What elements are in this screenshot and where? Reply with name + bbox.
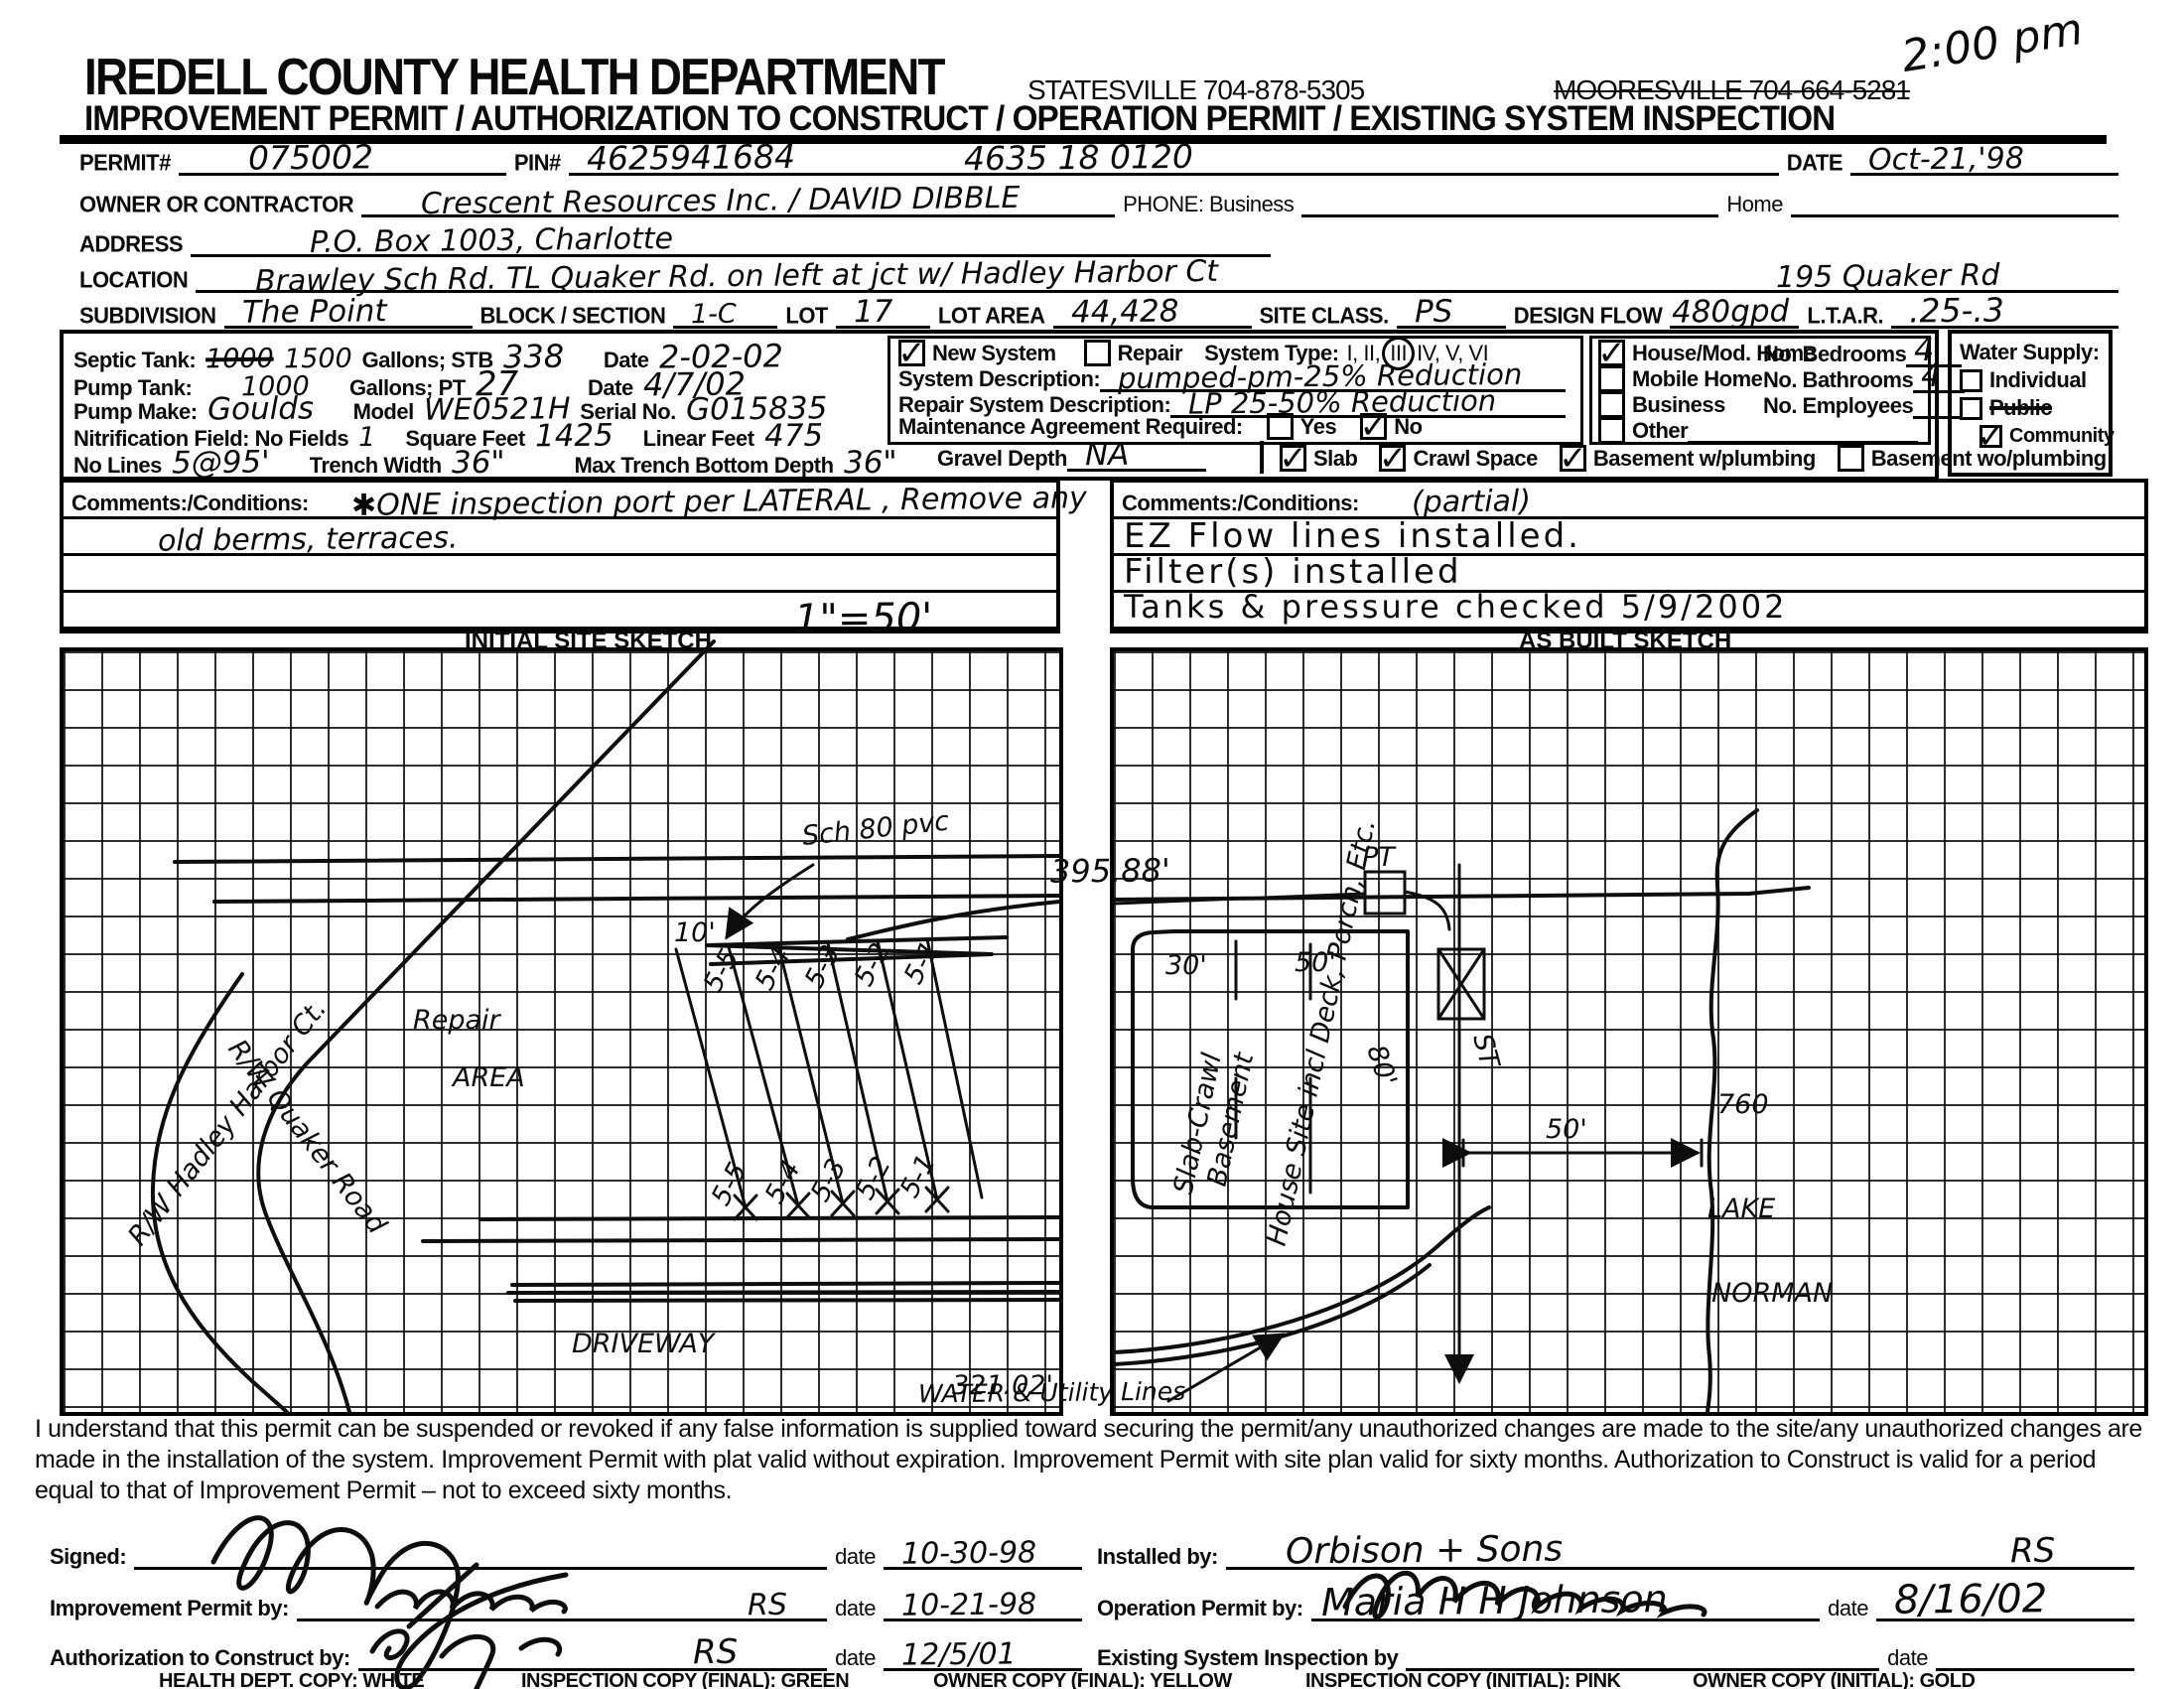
permit-field: 075002: [179, 143, 506, 176]
authorization-field: RS: [358, 1638, 827, 1671]
comments-left-label: Comments:/Conditions:: [71, 491, 309, 516]
community-label: Community: [2009, 425, 2115, 448]
house-checkbox: ✓: [1598, 340, 1625, 366]
copy-note-white: HEALTH DEPT. COPY: WHITE: [159, 1670, 424, 1689]
improvement-permit-label: Improvement Permit by:: [50, 1596, 289, 1621]
lateral-bottom-label: 5-4: [759, 1156, 807, 1209]
address-label: ADDRESS: [79, 230, 183, 257]
operation-date-value: 8/16/02: [1894, 1576, 2048, 1623]
legal-paragraph: I understand that this permit can be sus…: [35, 1414, 2159, 1506]
bathrooms-label: No. Bathrooms: [1763, 367, 1913, 393]
installed-by-label: Installed by:: [1097, 1544, 1218, 1570]
comments-right-line3: Tanks & pressure checked 5/9/2002: [1124, 588, 1787, 626]
signed-date-label: date: [835, 1544, 876, 1570]
site-class-label: SITE CLASS.: [1260, 302, 1389, 329]
water-supply-title: Water Supply:: [1960, 340, 2100, 365]
septic-tank-label: Septic Tank:: [73, 348, 196, 373]
system-type-box: ✓ New System Repair System Type: I, II, …: [887, 336, 1583, 445]
owner-label: OWNER OR CONTRACTOR: [79, 191, 353, 217]
copy-note-yellow: OWNER COPY (FINAL): YELLOW: [933, 1670, 1232, 1689]
pin-label: PIN#: [514, 149, 561, 176]
address-value: P.O. Box 1003, Charlotte: [310, 221, 673, 260]
installed-by-field: Orbison + Sons RS: [1226, 1537, 2134, 1570]
basement-wo-plumbing-checkbox: [1838, 445, 1864, 472]
no-lines-value: 5@95': [172, 444, 270, 481]
mobile-home-label: Mobile Home: [1632, 366, 1762, 392]
crawl-space-checkbox: ✓: [1379, 445, 1406, 472]
date-field: Oct-21,'98: [1850, 143, 2118, 176]
as-built-sketch-grid: PT ST 30' 50' 80' Slab-Crawl Basement Ho…: [1110, 647, 2148, 1416]
structure-type-box: ✓ House/Mod. Home Mobile Home Business O…: [1589, 336, 1931, 445]
permit-value: 075002: [248, 137, 373, 177]
authorization-suffix: RS: [693, 1632, 739, 1672]
new-system-checkbox: ✓: [898, 340, 925, 366]
improvement-date-label: date: [835, 1596, 876, 1621]
existing-date-label: date: [1887, 1645, 1928, 1671]
system-spec-box: Septic Tank: 1000 1500 Gallons; STB 338 …: [60, 330, 1939, 481]
location-row: LOCATION Brawley Sch Rd. TL Quaker Rd. o…: [79, 260, 2118, 293]
design-flow-label: DESIGN FLOW: [1514, 302, 1663, 329]
trench-width-label: Trench Width: [310, 453, 442, 479]
lake-label-1: LAKE: [1707, 1194, 1775, 1224]
new-system-label: New System: [932, 341, 1056, 366]
comments-right-note: (partial): [1412, 484, 1531, 519]
stb-date-label: Date: [604, 348, 649, 373]
site-class-field: PS: [1397, 296, 1506, 329]
date-label: DATE: [1787, 149, 1843, 176]
depth-80-label: 80': [1360, 1042, 1402, 1090]
initial-site-sketch-drawing: R/W Hadley Harbor Ct. R/W Quaker Road Re…: [64, 651, 1059, 1412]
trench-depth-label: Max Trench Bottom Depth: [574, 453, 833, 479]
pump-make-label: Pump Make:: [73, 399, 198, 425]
block-section-label: BLOCK / SECTION: [480, 302, 666, 329]
lot-field: 17: [836, 296, 930, 329]
gravel-depth-label: Gravel Depth: [937, 446, 1067, 472]
date-value: Oct-21,'98: [1868, 141, 2024, 178]
improvement-date-value: 10-21-98: [901, 1587, 1037, 1622]
maintenance-label: Maintenance Agreement Required:: [898, 414, 1243, 440]
authorization-date-field: 12/5/01: [884, 1638, 1082, 1671]
existing-inspection-field: [1406, 1638, 1879, 1671]
copy-note-green: INSPECTION COPY (FINAL): GREEN: [521, 1670, 849, 1689]
lateral-line: [927, 939, 982, 1197]
crawl-space-label: Crawl Space: [1413, 446, 1537, 472]
operation-permit-field: Maria H H Johnson: [1311, 1589, 1821, 1621]
authorization-label: Authorization to Construct by:: [50, 1645, 350, 1671]
comments-left-line1: ✱ONE inspection port per LATERAL , Remov…: [351, 481, 1087, 523]
signed-row: Signed: date 10-30-98: [50, 1537, 1082, 1570]
phone-home-field: [1791, 185, 2118, 217]
septic-old-value: 1000: [205, 344, 274, 375]
contour-760-label: 760: [1717, 1089, 1769, 1120]
phone-business-field: [1301, 185, 1718, 217]
gravel-depth-field: NA: [1067, 445, 1206, 472]
owner-row: OWNER OR CONTRACTOR Crescent Resources I…: [79, 185, 2118, 217]
sketch-scale-note: 1"=50': [794, 595, 933, 641]
septic-units-label: Gallons; STB: [362, 348, 493, 373]
site-class-value: PS: [1415, 294, 1453, 330]
address-field: P.O. Box 1003, Charlotte: [191, 224, 1271, 257]
block-section-value: 1-C: [691, 299, 737, 330]
permit-row: PERMIT# 075002 PIN# 4625941684 4635 18 0…: [79, 143, 2118, 176]
basement-w-plumbing-label: Basement w/plumbing: [1593, 446, 1816, 472]
phone-home-label: Home: [1726, 192, 1783, 217]
sqft-value: 1425: [535, 418, 614, 455]
phone-business-label: PHONE: Business: [1123, 192, 1294, 217]
septic-tank-x-mark: [1438, 949, 1484, 1019]
employees-label: No. Employees: [1763, 393, 1913, 419]
parcel-value: 4635 18 0120: [964, 137, 1193, 178]
installed-by-suffix: RS: [2010, 1531, 2056, 1571]
pin-field: 4625941684 4635 18 0120: [569, 143, 1779, 176]
maintenance-yes-label: Yes: [1300, 414, 1336, 440]
no-lines-label: No Lines: [73, 453, 162, 479]
comments-right-line1: EZ Flow lines installed.: [1124, 516, 1581, 556]
lateral-top-label: 5-1: [898, 936, 946, 989]
copy-note-pink: INSPECTION COPY (INITIAL): PINK: [1305, 1670, 1620, 1689]
north-boundary-line: [175, 856, 1059, 862]
community-checkbox: ✓: [1979, 425, 2002, 448]
individual-label: Individual: [1989, 367, 2087, 393]
driveway-lower-edge: [423, 1239, 1059, 1241]
authorization-row: Authorization to Construct by: RS date 1…: [50, 1638, 1082, 1671]
business-checkbox: [1598, 391, 1625, 418]
maintenance-yes-checkbox: [1267, 413, 1294, 440]
signed-date-value: 10-30-98: [901, 1535, 1037, 1571]
pump-tank-label: Pump Tank:: [73, 375, 192, 401]
permit-label: PERMIT#: [79, 149, 171, 176]
tank-spec-column: Septic Tank: 1000 1500 Gallons; STB 338 …: [73, 338, 883, 473]
comments-right-line2: Filter(s) installed: [1124, 552, 1462, 592]
lake-label-2: NORMAN: [1711, 1278, 1833, 1309]
lateral-top-label: 5-2: [849, 938, 896, 991]
ltar-value: .25-.3: [1909, 290, 2004, 330]
lot-area-field: 44,428: [1053, 296, 1252, 329]
maintenance-no-label: No: [1394, 414, 1422, 440]
existing-date-field: [1936, 1638, 2134, 1671]
fields-value: 1: [358, 422, 376, 453]
other-field: [1688, 419, 1918, 444]
survey-line-395: [214, 896, 1059, 902]
authorization-date-value: 12/5/01: [901, 1636, 1017, 1672]
lot-boundary-line: [1114, 888, 1809, 900]
repair-checkbox: [1084, 340, 1111, 366]
operation-permit-row: Operation Permit by: Maria H H Johnson d…: [1097, 1589, 2134, 1621]
lot-area-value: 44,428: [1070, 293, 1178, 330]
operation-permit-value: Maria H H Johnson: [1320, 1577, 1667, 1624]
linear-value: 475: [763, 418, 823, 455]
repair-label-2: AREA: [451, 1062, 525, 1093]
existing-inspection-label: Existing System Inspection by: [1097, 1645, 1398, 1671]
owner-field: Crescent Resources Inc. / DAVID DIBBLE: [361, 185, 1115, 217]
existing-inspection-row: Existing System Inspection by date: [1097, 1638, 2134, 1671]
slab-checkbox: ✓: [1280, 445, 1306, 472]
location-field: Brawley Sch Rd. TL Quaker Rd. on left at…: [196, 260, 2118, 293]
sch80-label: Sch 80 pvc: [800, 806, 950, 852]
lot-value: 17: [854, 294, 893, 330]
pump-tank-symbol: [1365, 872, 1405, 914]
signed-date-field: 10-30-98: [884, 1537, 1082, 1570]
utility-lines-bundle: [508, 1283, 1059, 1301]
comments-right-label: Comments:/Conditions:: [1122, 491, 1359, 516]
trench-depth-value: 36": [843, 445, 896, 482]
driveway-upper-edge: [480, 1217, 1059, 1219]
signed-label: Signed:: [50, 1544, 126, 1570]
water-utility-label: WATER & Utility Lines: [918, 1377, 1185, 1409]
individual-checkbox: [1960, 369, 1982, 392]
pt-date-label: Date: [588, 375, 633, 401]
width-30-label: 30': [1165, 950, 1207, 981]
house-site-label: House Site incl Deck, Porch, Etc.: [1262, 816, 1382, 1248]
subdivision-field: The Point: [224, 296, 473, 329]
gravel-depth-value: NA: [1085, 437, 1130, 473]
installed-by-row: Installed by: Orbison + Sons RS: [1097, 1537, 2134, 1570]
location-value-2: 195 Quaker Rd: [1775, 258, 1999, 295]
form-subtitle: IMPROVEMENT PERMIT / AUTHORIZATION TO CO…: [84, 99, 1835, 139]
septic-tank-label: ST: [1466, 1031, 1505, 1073]
copy-note-gold: OWNER COPY (INITIAL): GOLD: [1693, 1670, 1975, 1689]
location-label: LOCATION: [79, 266, 188, 293]
comments-right-box: Comments:/Conditions: (partial) EZ Flow …: [1110, 479, 2148, 633]
ltar-label: L.T.A.R.: [1807, 302, 1883, 329]
lateral-bottom-label: 5-5: [706, 1158, 753, 1211]
other-label: Other: [1632, 418, 1688, 444]
design-flow-value: 480gpd: [1672, 293, 1790, 330]
subdivision-value: The Point: [241, 293, 386, 331]
signed-field: [134, 1537, 827, 1570]
maintenance-no-checkbox: ✓: [1360, 413, 1387, 440]
operation-permit-label: Operation Permit by:: [1097, 1596, 1303, 1621]
business-label: Business: [1632, 392, 1725, 418]
initial-site-sketch-grid: R/W Hadley Harbor Ct. R/W Quaker Road Re…: [60, 647, 1063, 1416]
design-flow-field: 480gpd: [1670, 296, 1799, 329]
driveway-label: DRIVEWAY: [572, 1329, 717, 1359]
owner-value: Crescent Resources Inc. / DAVID DIBBLE: [421, 181, 1021, 221]
subdivision-row: SUBDIVISION The Point BLOCK / SECTION 1-…: [79, 296, 2118, 329]
operation-date-label: date: [1828, 1596, 1868, 1621]
strip-divider: [1260, 441, 1264, 474]
improvement-permit-field: RS: [297, 1589, 827, 1621]
setback-50-label: 50': [1546, 1114, 1587, 1145]
septic-new-value: 1500: [284, 344, 352, 375]
system-desc-label: System Description:: [898, 366, 1100, 392]
sch80-arrow: [727, 865, 813, 937]
force-main-line: [848, 902, 1059, 939]
gravel-row: Gravel Depth NA: [937, 445, 1206, 472]
improvement-suffix: RS: [748, 1588, 787, 1622]
basement-w-plumbing-checkbox: ✓: [1560, 445, 1586, 472]
improvement-permit-row: Improvement Permit by: RS date 10-21-98: [50, 1589, 1082, 1621]
as-built-sketch-drawing: PT ST 30' 50' 80' Slab-Crawl Basement Ho…: [1114, 651, 2144, 1412]
water-supply-box: Water Supply: Individual Public ✓ Commun…: [1948, 330, 2113, 477]
operation-date-field: 8/16/02: [1876, 1589, 2134, 1621]
installed-by-value: Orbison + Sons: [1286, 1529, 1564, 1573]
improvement-date-field: 10-21-98: [884, 1589, 1082, 1621]
repair-label-1: Repair: [413, 1005, 502, 1036]
permit-form-scan: IREDELL COUNTY HEALTH DEPARTMENT STATESV…: [0, 0, 2184, 1689]
boundary-395-label: 395.88': [1050, 851, 1170, 890]
other-checkbox: [1598, 417, 1625, 444]
mobile-home-checkbox: [1598, 365, 1625, 392]
linear-label: Linear Feet: [643, 426, 754, 452]
address-row: ADDRESS P.O. Box 1003, Charlotte: [79, 224, 1271, 257]
lot-area-label: LOT AREA: [938, 302, 1045, 329]
location-value: Brawley Sch Rd. TL Quaker Rd. on left at…: [255, 254, 1218, 299]
lateral-top-label: 5-5: [698, 944, 746, 997]
pin-value: 4625941684: [587, 137, 795, 178]
subdivision-label: SUBDIVISION: [79, 302, 216, 329]
bedrooms-label: No. Bedrooms: [1763, 342, 1906, 367]
slab-label: Slab: [1313, 446, 1357, 472]
authorization-date-label: date: [835, 1645, 876, 1671]
trench-width-value: 36": [452, 445, 505, 482]
bathrooms-value: 4: [1921, 356, 1942, 394]
block-section-field: 1-C: [673, 296, 777, 329]
page-title: IREDELL COUNTY HEALTH DEPARTMENT: [84, 48, 944, 107]
comments-left-line2: old berms, terraces.: [158, 520, 459, 558]
pump-make-value: Goulds: [206, 390, 313, 427]
ltar-field: .25-.3: [1891, 296, 2118, 329]
handwritten-time-note: 2:00 pm: [1898, 4, 2086, 82]
lot-label: LOT: [785, 302, 828, 329]
